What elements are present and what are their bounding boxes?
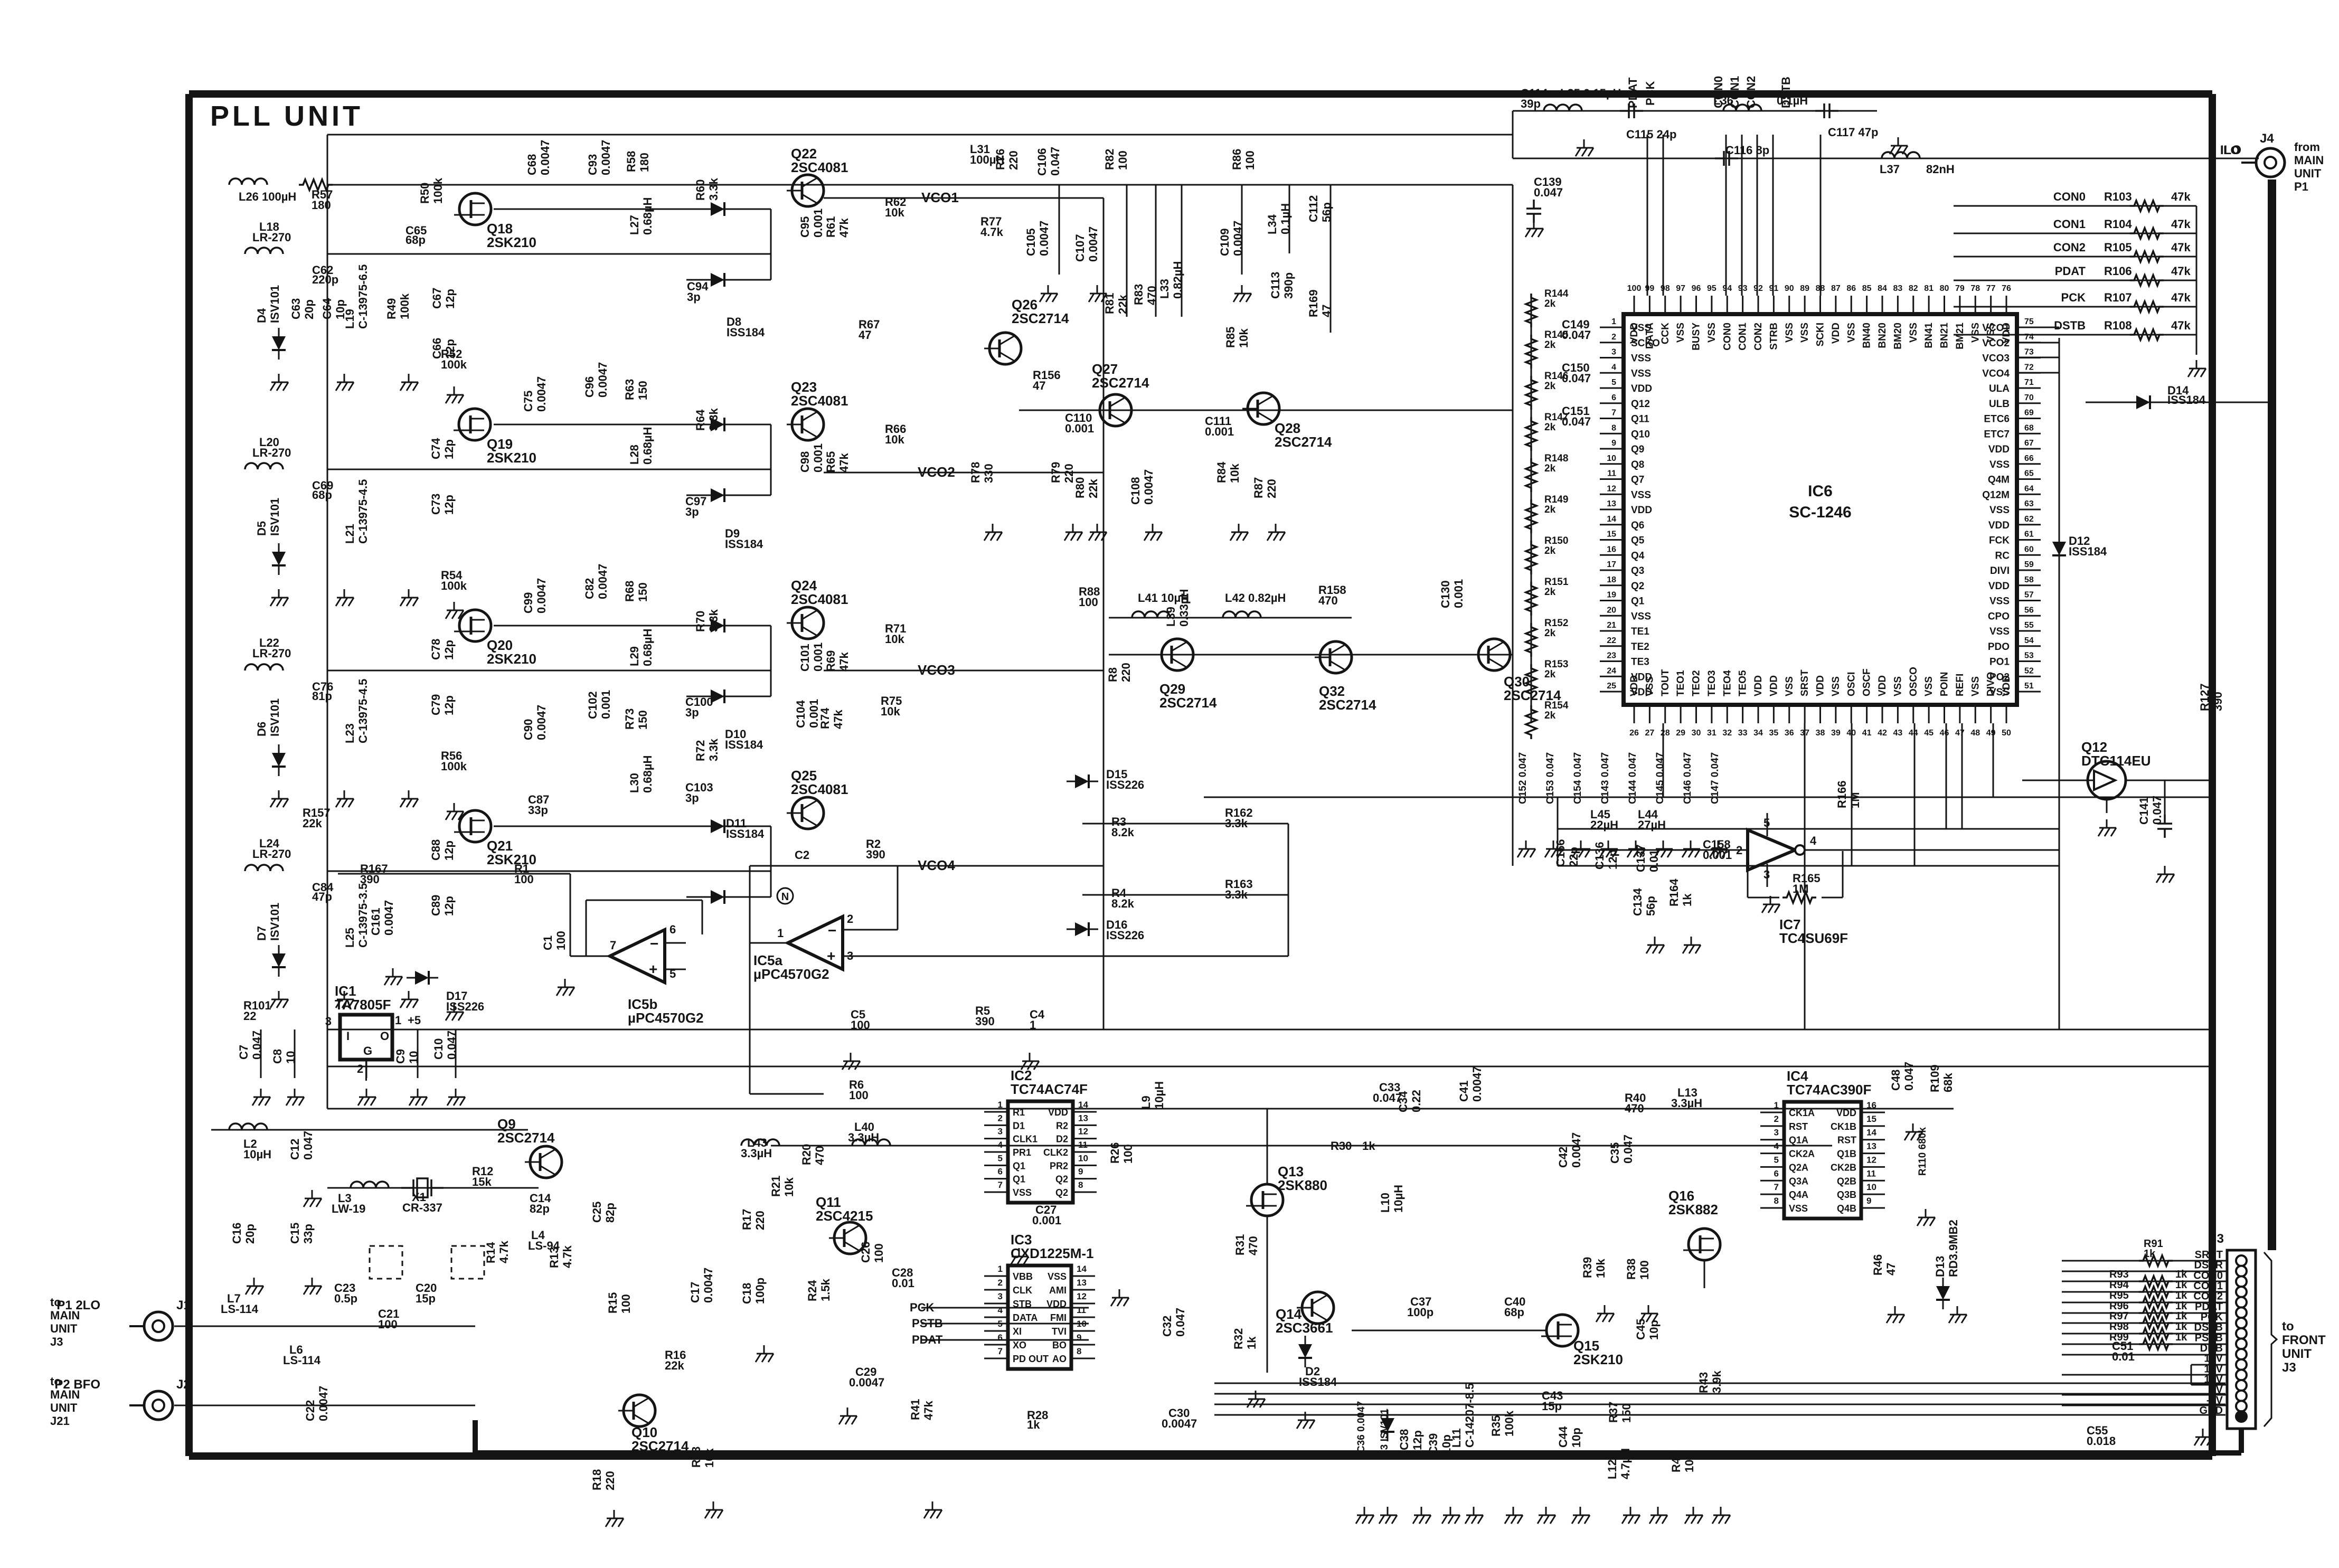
label: 47 [1033, 379, 1045, 392]
label: CON0 [1712, 76, 1725, 108]
label: C137 [1634, 844, 1647, 872]
ic6-pin-label: TEO5 [1738, 670, 1749, 696]
net-label: DSTB [2054, 319, 2086, 332]
label: 150 [636, 710, 649, 730]
ic6-pin-label: VSS [1631, 489, 1651, 500]
label: 12 [1077, 1291, 1087, 1301]
ground-icon [1685, 1507, 1703, 1524]
label: 10µH [1153, 1081, 1166, 1109]
label: 78 [1970, 284, 1980, 293]
label: D13 [1934, 1256, 1947, 1277]
label: R46 [1871, 1254, 1884, 1276]
inductor-icon [351, 1182, 389, 1188]
ic6-pin-label: STRB [1768, 323, 1779, 350]
label: 1 [1030, 1018, 1036, 1032]
ic6-pin-label: CON1 [1738, 323, 1749, 351]
label: R81 [1103, 293, 1116, 314]
label: 68p [405, 233, 426, 247]
resistor-icon [2139, 1328, 2173, 1339]
label: G [363, 1044, 372, 1057]
label: LW-19 [332, 1202, 365, 1215]
label: C88 [429, 839, 442, 861]
transistor-q16: Q162SK882 [1668, 1188, 1720, 1260]
ground-icon [1646, 937, 1664, 953]
label: L11 [1450, 1428, 1463, 1448]
label: 47 [1320, 305, 1333, 317]
ic-block-ic3: IC3CXD1225M-11VBB2CLK3STB4DATA5XI6XO7PD … [984, 1232, 1095, 1369]
label: LS-94 [528, 1239, 560, 1252]
ic6-pin-label: Q1 [1631, 596, 1645, 607]
label: 0.0047 [849, 1376, 884, 1389]
label: 10k [881, 705, 900, 718]
label: C34 [1397, 1091, 1410, 1112]
label: 24 [1607, 666, 1616, 675]
transistor-part: 2SC2714 [1275, 434, 1332, 450]
label: C105 [1024, 228, 1038, 256]
label: 68 [2024, 423, 2034, 432]
label: 22k [1087, 479, 1100, 498]
ic6-pin-label: VSS [1970, 323, 1981, 343]
label: R61 [824, 216, 837, 238]
transistor-part: 2SK880 [1278, 1177, 1327, 1193]
label: 43 [1893, 729, 1902, 738]
resistor-icon [2139, 1318, 2173, 1328]
label: C102 [586, 691, 599, 719]
diode-icon [2052, 533, 2066, 565]
resistor-icon [1526, 499, 1536, 533]
label: C106 [1035, 148, 1049, 176]
label: 10k [782, 1177, 796, 1197]
label: 100k [441, 579, 467, 592]
label: 3p [685, 505, 699, 518]
transistor-q14: Q142SC3661 [1276, 1292, 1334, 1336]
label: 47k [2171, 190, 2191, 203]
label: 7 [998, 1180, 1003, 1190]
label: 82p [603, 1203, 617, 1223]
transistor-part: 2SK210 [1573, 1352, 1623, 1367]
label: R17 [740, 1209, 753, 1230]
ic6-pin-label: VDD [1831, 323, 1842, 344]
ic-pin-label: VDD [1836, 1108, 1856, 1118]
label: C35 [1608, 1142, 1621, 1164]
label: C117 47p [1828, 126, 1878, 139]
label: 68p [1504, 1306, 1524, 1319]
label: 26 [1629, 729, 1639, 738]
label: R94 [2109, 1279, 2129, 1291]
label: 10p [1647, 1320, 1661, 1340]
label: 1 [1611, 317, 1616, 326]
label: 0.047 [1902, 1062, 1916, 1091]
label: 3 [998, 1127, 1003, 1137]
label: R107 [2104, 291, 2132, 304]
label: 11 [1078, 1140, 1088, 1150]
label: 5 [998, 1319, 1003, 1329]
ic6-pin-label: BN41 [1923, 323, 1935, 348]
ground-icon [1596, 1305, 1614, 1322]
label: C89 [429, 895, 442, 916]
label: R64 [694, 409, 707, 431]
ic6-pin-label: OSCF [1862, 668, 1873, 696]
label: 100 [851, 1018, 870, 1032]
label: C95 [798, 216, 812, 238]
label: R82 [1103, 149, 1116, 170]
label: C78 [429, 639, 442, 660]
label: 1M [1848, 792, 1862, 808]
label: 54 [2024, 636, 2034, 645]
label: 19 [1607, 591, 1616, 600]
label: LR-270 [252, 847, 291, 861]
label: 3.3k [707, 738, 720, 761]
label: 0.0047 [1570, 1132, 1583, 1168]
label: 85 [1862, 284, 1872, 293]
ic6-pin-label: CCK [1660, 323, 1671, 344]
label: 4.7µH [1619, 1448, 1632, 1479]
label: R63 [623, 379, 636, 400]
label: 95 [1707, 284, 1716, 293]
label: 20p [303, 299, 316, 319]
ic-part: TC74AC390F [1787, 1082, 1871, 1098]
transistor-q13: Q132SK880 [1246, 1164, 1327, 1216]
label: R49 [385, 298, 398, 319]
label: 15 [1607, 530, 1616, 539]
ic-pin-label: XI [1013, 1326, 1022, 1337]
label: R58 [625, 151, 638, 172]
label: 28 [1661, 729, 1670, 738]
ground-icon [1517, 840, 1535, 857]
transistor-part: 2SK210 [487, 234, 536, 250]
label: CON2 [1744, 76, 1758, 108]
label: 0.01 [2112, 1350, 2135, 1363]
ic-pin-label: D2 [1056, 1134, 1068, 1145]
diode-icon [702, 890, 734, 904]
label: 41 [1862, 729, 1872, 738]
label: ISS226 [1106, 778, 1144, 791]
label: 16 [1607, 545, 1616, 554]
transistor-part: 2SC3661 [1276, 1320, 1333, 1336]
transistor-part: 2SC2714 [1159, 695, 1217, 711]
label: R8 [1106, 667, 1119, 682]
ic-pin-label: RST [1837, 1135, 1856, 1146]
resistor-icon [1526, 335, 1536, 369]
ic6-pin-label: VSS [1908, 323, 1919, 343]
label: 0.018 [2087, 1434, 2116, 1448]
ground-icon [1572, 1507, 1590, 1524]
inductor-icon [1882, 152, 1920, 158]
ic6-pin-label: VSS [1799, 323, 1810, 343]
shield-box [370, 1246, 402, 1279]
ic6-pin-label: VCO3 [1982, 353, 2010, 364]
label: VCO4 [918, 857, 955, 873]
label: 52 [2024, 666, 2034, 675]
label: 0.001 [1452, 579, 1465, 608]
label: 1k [1681, 893, 1694, 906]
connector-dest: J21 [50, 1414, 70, 1428]
label: 390 [866, 848, 885, 861]
ground-icon [1040, 285, 1058, 302]
ic-pin-label: D1 [1013, 1120, 1025, 1131]
ground-icon [1230, 524, 1248, 541]
label: C18 [740, 1283, 753, 1304]
ground-icon [336, 589, 354, 606]
label: 180 [638, 153, 651, 172]
label: R166 [1835, 780, 1848, 808]
label: 0.0047 [1142, 469, 1155, 505]
label: 29 [1676, 729, 1685, 738]
label: 15k [472, 1175, 492, 1188]
label: 22p [1567, 847, 1580, 867]
ic-pin-label: R1 [1013, 1107, 1025, 1118]
label: L25 [343, 928, 356, 948]
label: D5 [255, 521, 268, 536]
label: 180 [312, 199, 331, 212]
label: PSTB [912, 1317, 943, 1330]
label: 0.0047 [535, 376, 548, 412]
label: + [827, 948, 835, 964]
label: R42 [1670, 1451, 1683, 1472]
label: 1k [1027, 1418, 1040, 1431]
label: 79 [1955, 284, 1965, 293]
label: 4 [998, 1305, 1003, 1315]
diode-icon [407, 971, 438, 985]
label: 390p [1282, 272, 1295, 299]
label: 35 [1769, 729, 1778, 738]
label: 66 [2024, 454, 2034, 463]
label: 10k [703, 1448, 716, 1468]
connector-dest: UNIT [2294, 167, 2322, 180]
ic-pin-label: AMI [1049, 1285, 1067, 1296]
label: 0.047 [301, 1131, 315, 1160]
diode-icon [272, 744, 286, 776]
connector-dest: MAIN [50, 1309, 80, 1322]
label: C161 [369, 908, 382, 936]
label: ISS184 [727, 326, 765, 339]
label: 1k [2175, 1321, 2187, 1333]
label: C98 [798, 451, 812, 473]
label: 57 [2024, 591, 2034, 600]
ic-pin-label: PD OUT [1013, 1354, 1049, 1364]
ground-icon [446, 386, 464, 403]
label: 220p [312, 273, 338, 286]
label: 15p [416, 1292, 436, 1305]
connector-dest: to [50, 1296, 61, 1309]
label: R26 [1108, 1142, 1121, 1164]
label: 3 [847, 949, 853, 962]
ic-pin-label: VDD [1046, 1299, 1067, 1309]
label: L9 [1139, 1095, 1153, 1109]
label: 100p [1407, 1306, 1433, 1319]
label: 5 [1774, 1155, 1779, 1165]
label: C152 0.047 [1517, 752, 1529, 804]
label: 5 [1611, 378, 1616, 387]
label: C32 [1161, 1316, 1174, 1337]
label: 0.047 [2151, 796, 2164, 825]
ic6-pin-label: Q10 [1631, 429, 1650, 440]
inductor-icon [245, 664, 283, 670]
ic6-pin-label: Q11 [1631, 414, 1649, 425]
ic6-pin-label: OSCO [1908, 667, 1919, 696]
label: 10k [885, 206, 904, 219]
label: 7 [998, 1346, 1003, 1356]
label: R68 [623, 581, 636, 602]
transistor-part: 2SC2714 [497, 1130, 555, 1146]
label: 56p [1320, 202, 1333, 222]
label: C99 [522, 592, 535, 613]
ground-icon [1917, 1209, 1935, 1226]
diode-icon [702, 202, 734, 216]
label: 3.3µH [1671, 1097, 1702, 1110]
ic6-pin-label: Q7 [1631, 475, 1644, 486]
label: 44 [1909, 729, 1918, 738]
label: 2 [357, 1062, 363, 1075]
label: 470 [1318, 594, 1338, 607]
label: 47k [837, 218, 851, 238]
label: 100 [1627, 284, 1642, 293]
label: 0.0047 [1038, 221, 1051, 256]
transistor-part: 2SC4215 [816, 1208, 873, 1224]
resistor-icon [1526, 458, 1536, 492]
label: R79 [1049, 462, 1062, 483]
label: 10k [1594, 1259, 1607, 1278]
label: PDAT [1626, 77, 1639, 108]
label: PDAT [912, 1333, 943, 1346]
ic6-pin-label: VSS [1675, 323, 1686, 343]
connector-dest: from [2294, 140, 2320, 154]
label: C1 [541, 936, 554, 950]
ic6-pin-label: SRST [1799, 669, 1810, 696]
label: R98 [2109, 1321, 2129, 1333]
transistor-q26: Q262SC2714 [984, 297, 1069, 364]
label: C-13975-4.5 [356, 479, 370, 544]
ic6-pin-label: VDD [2001, 675, 2012, 696]
connector-name: J1 [176, 1298, 191, 1312]
label: 0.0047 [599, 140, 612, 175]
label: 3p [685, 706, 699, 719]
label: 33p [301, 1224, 315, 1244]
ic-pin-label: Q1 [1013, 1160, 1025, 1171]
label: R50 [418, 183, 431, 204]
ic6-pin-label: CON2 [1753, 323, 1764, 351]
diode-icon [272, 945, 286, 977]
label: 62 [2024, 515, 2034, 524]
ic-pin-label: PR2 [1050, 1160, 1068, 1171]
resistor-icon [2139, 1276, 2173, 1287]
ic-pin-label: Q2B [1837, 1176, 1856, 1186]
label: 3.3k [707, 609, 720, 632]
label: ISV101 [268, 285, 281, 323]
connector-dest: FRONT [2282, 1333, 2326, 1347]
label: R104 [2104, 218, 2132, 231]
label: 1k [2175, 1269, 2187, 1280]
ground-icon [1111, 1289, 1129, 1306]
ic6-ref: IC6 [1808, 483, 1833, 500]
diode-icon [1067, 774, 1098, 788]
transistor-q24: Q242SC4081 [787, 578, 848, 639]
label: 100k [441, 760, 467, 773]
ic-pin-label: VBB [1013, 1271, 1033, 1282]
ic6-pin-label: VDD [1815, 675, 1826, 696]
ground-icon [270, 374, 288, 391]
label: 100 [1243, 150, 1257, 170]
label: 82 [1909, 284, 1918, 293]
label: 39 [1831, 729, 1841, 738]
label: C41 [1457, 1081, 1470, 1102]
ground-icon [1505, 1507, 1523, 1524]
label: 3 [1774, 1128, 1779, 1138]
label: C45 [1634, 1319, 1647, 1340]
label: 38 [1816, 729, 1825, 738]
label: 0.001 [812, 209, 825, 238]
resistor-icon [2130, 329, 2164, 340]
label: 68k [1941, 1073, 1955, 1092]
label: ISV101 [268, 698, 281, 736]
ic6-pin-label: Q8 [1631, 459, 1644, 470]
label: 10p [1570, 1428, 1583, 1448]
inductor-icon [245, 865, 283, 871]
label: D6 [255, 722, 268, 736]
label: − [650, 936, 658, 952]
ground-icon [984, 524, 1002, 541]
label: 46 [1940, 729, 1949, 738]
label: 10 [1077, 1319, 1087, 1329]
label: 10k [1228, 464, 1241, 483]
ground-icon [400, 374, 418, 391]
ground-icon [304, 1190, 322, 1207]
label: 3.3k [707, 177, 720, 201]
ic6-pin-label: ULA [1989, 383, 2010, 394]
ground-icon [1762, 896, 1780, 913]
ic6-pin-label: ULB [1989, 399, 2010, 410]
ground-icon [1144, 524, 1162, 541]
label: 100 [1121, 1144, 1135, 1164]
label: 4 [998, 1140, 1003, 1150]
ground-icon [1682, 840, 1700, 857]
label: R149 [1544, 494, 1568, 505]
label: 25 [1607, 682, 1616, 691]
label: 4 [1611, 363, 1616, 372]
resistor-icon [1526, 582, 1536, 616]
label: 330 [982, 464, 995, 483]
label: C79 [429, 694, 442, 715]
label: 0.68µH [641, 197, 654, 235]
ic6-pin-label: VSS [1631, 368, 1651, 379]
ic-pin-label: VSS [1789, 1203, 1808, 1214]
label: R150 [1544, 535, 1568, 546]
ic-pin-label: CLK2 [1043, 1147, 1068, 1158]
coax-connector-j2: P2 BFOJ2toMAINUNITJ21 [50, 1375, 191, 1428]
label: C12 [288, 1139, 301, 1160]
label: 100 [619, 1294, 633, 1314]
label: C96 [583, 376, 596, 398]
label: C82 [583, 578, 596, 599]
label: 22k [1116, 295, 1129, 314]
transistor-part: 2SC4081 [791, 781, 848, 797]
schematic-title: PLL UNIT [210, 100, 363, 132]
ic-pin-label: Q1 [1013, 1174, 1025, 1185]
label: 15p [1542, 1400, 1562, 1413]
label: 100 [554, 931, 568, 950]
label: 63 [2024, 499, 2034, 508]
inductor-icon [1544, 105, 1582, 111]
label: 0.0047 [535, 578, 548, 613]
label: 3.9k [1710, 1370, 1723, 1393]
ic6-pin-label: BM21 [1955, 323, 1966, 350]
label: 100 [1116, 150, 1129, 170]
ic6-pin-label: REFI [1955, 674, 1966, 696]
ground-icon [270, 991, 288, 1008]
label: 70 [2024, 393, 2034, 402]
ic6-pin-label: OSCI [1846, 672, 1857, 696]
label: ISS184 [725, 738, 763, 751]
